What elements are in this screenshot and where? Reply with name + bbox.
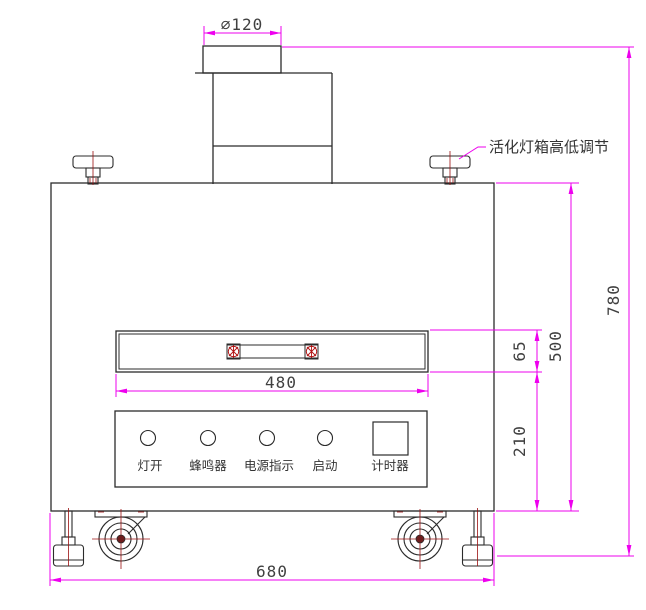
dim-overall-height [282, 47, 634, 556]
dim-text-slot-width: 480 [265, 373, 297, 392]
power-indicator-lamp [260, 431, 275, 446]
slot-window-inner [119, 334, 425, 369]
panel-label-timer: 计时器 [371, 459, 409, 473]
slot-window-outer [116, 331, 428, 372]
caster-hub [416, 535, 424, 543]
panel-label-start: 启动 [312, 459, 337, 473]
caster-left [92, 509, 150, 569]
height-adjust-knobs [73, 151, 470, 185]
panel-label-buzzer: 蜂鸣器 [189, 458, 227, 473]
bearing-hatch [228, 345, 316, 358]
slide-carrier [227, 345, 318, 358]
engineering-drawing-canvas: ∅120 480 65 500 210 780 680 活化灯箱高低调节 灯开 … [0, 0, 646, 610]
dim-text-cabinet-height: 500 [546, 330, 565, 362]
panel-label-lamp-on: 灯开 [137, 459, 162, 473]
callout-leader-line [459, 147, 486, 159]
dim-text-overall-width: 680 [256, 562, 288, 581]
exhaust-pipe [203, 46, 281, 73]
machine-outline [51, 46, 494, 511]
leveling-foot-right [463, 508, 493, 566]
start-button [318, 431, 333, 446]
caster-hub [117, 535, 125, 543]
caster-right [391, 509, 449, 569]
timer-display [373, 422, 408, 455]
machine-front-view-drawing: ∅120 480 65 500 210 780 680 活化灯箱高低调节 灯开 … [0, 0, 646, 610]
dim-text-pipe-diameter: ∅120 [221, 15, 264, 34]
lamp-on-button [141, 431, 156, 446]
dim-text-lower-section-height: 210 [510, 425, 529, 457]
dim-text-overall-height: 780 [604, 284, 623, 316]
dim-text-slot-height: 65 [510, 340, 529, 361]
buzzer-button [201, 431, 216, 446]
panel-label-power-indicator: 电源指示 [244, 458, 294, 473]
callout-label: 活化灯箱高低调节 [489, 139, 609, 156]
leveling-foot-left [54, 508, 84, 566]
dimension-lines [50, 26, 634, 586]
